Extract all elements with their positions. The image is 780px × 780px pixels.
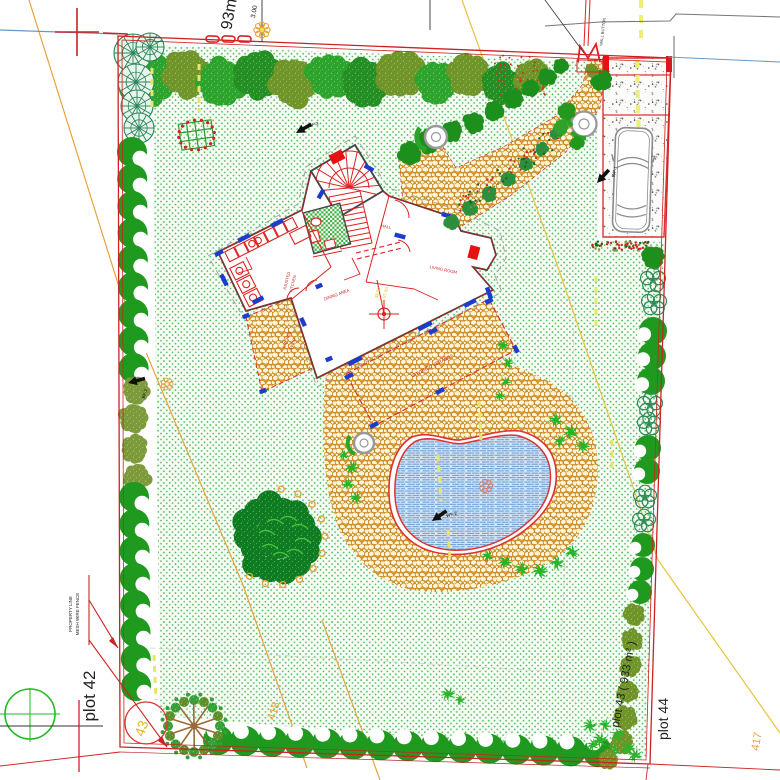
svg-text:PROPERTY LINE: PROPERTY LINE (68, 596, 73, 632)
svg-text:plot 44: plot 44 (655, 698, 671, 740)
svg-text:MESH WIRE FENCE: MESH WIRE FENCE (75, 593, 80, 636)
svg-text:plot 42: plot 42 (80, 670, 99, 721)
